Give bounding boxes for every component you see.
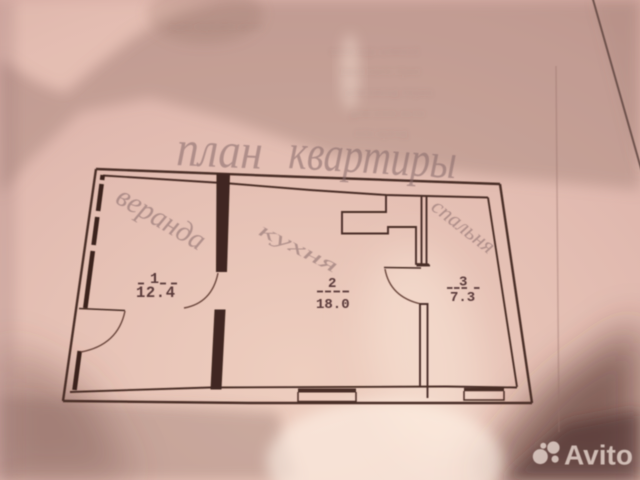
svg-text:длм оплс нсло: длм оплс нсло <box>350 108 425 120</box>
svg-text:нлпо идо алмroot: нлпо идо алмroot <box>330 46 418 58</box>
svg-text:7.3: 7.3 <box>450 290 475 306</box>
svg-text:алм оиснд лориа: алм оиснд лориа <box>345 87 433 99</box>
svg-text:план: план <box>176 120 264 180</box>
svg-text:Avito: Avito <box>564 440 633 471</box>
svg-text:2: 2 <box>328 276 336 292</box>
svg-text:18.0: 18.0 <box>316 297 350 313</box>
svg-text:12.4: 12.4 <box>136 284 176 302</box>
svg-text:квартиры: квартиры <box>287 123 458 189</box>
svg-text:казн оцrealm ирио: казн оцrealm ирио <box>170 21 263 33</box>
svg-text:тмел нало прио: тмел нало прио <box>340 66 420 78</box>
